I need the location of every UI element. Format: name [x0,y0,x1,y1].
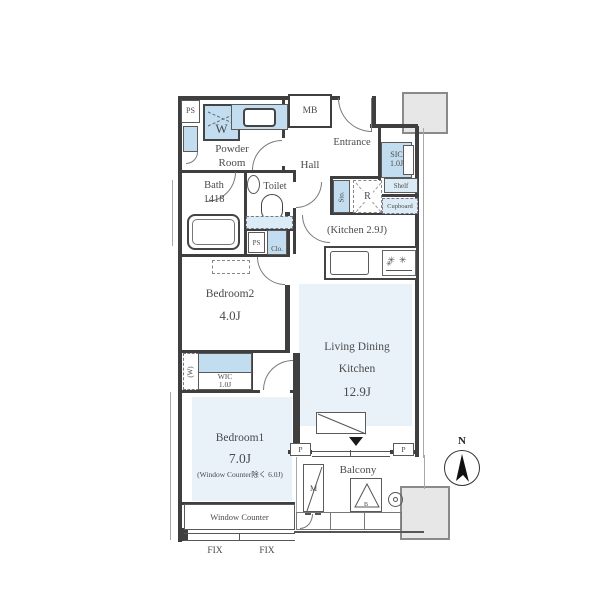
meter-box: MB [288,94,332,128]
powder-room-label: Powder Room [186,142,278,171]
window-balcony [312,456,390,457]
wall [293,353,300,453]
bedroom2-size-label: 4.0J [189,308,271,325]
compass-north-label: N [452,434,472,448]
bathtub-inner [192,219,235,245]
toilet-label: Toilet [256,180,294,193]
wall [415,126,419,457]
bedroom2-door-arc [257,257,285,285]
bedroom1-door-arc [263,360,293,390]
window-bath-left [172,180,173,246]
fix-right-label: FIX [250,545,284,557]
balcony-base-line [294,531,424,533]
refrigerator-space: R [353,180,382,213]
wall [293,208,296,254]
ac-unit [316,412,366,434]
bedroom1-name-label: Bedroom1 [198,431,282,446]
kitchen-note-label: (Kitchen 2.9J) [312,224,402,238]
compass-needle [445,451,481,487]
fix-left-label: FIX [198,545,232,557]
clo-label: Clo. [271,245,283,253]
wall [282,166,285,172]
window-counter-label: Window Counter [210,512,268,522]
ldk-label-line2: Kitchen [314,362,400,377]
p-right-label: P [401,445,405,454]
hall-label: Hall [288,158,332,172]
wic-w-strip: (W) [183,353,199,390]
sash-direction-marker [349,437,363,446]
balcony-edge-left [296,457,297,513]
window-mullion [350,450,351,457]
ps-top-label: PS [186,107,195,116]
outline-left-bottom [170,392,171,540]
hatch-label: B [364,502,368,508]
wic-label: WIC 1.0J [218,373,233,390]
entrance-label: Entrance [324,136,380,150]
evacuation-hatch: B [350,478,382,512]
bedroom1-size-label: 7.0J [198,450,282,468]
p-left-label: P [298,445,302,454]
window-mullion [239,533,240,541]
bathtub [187,214,240,250]
entrance-door-arc [338,98,372,132]
sic-label: SIC 1.0J [390,151,403,169]
pipe-space-mid: PS [248,232,265,253]
wall [285,285,290,353]
ldk-floor [299,284,412,426]
ldk-size-label: 12.9J [314,384,400,401]
entrance-door-leaf [371,98,372,132]
drain-inner [393,497,398,502]
wall [178,390,260,393]
window-balcony [312,451,390,452]
railing-divider [364,512,365,530]
balcony-label: Balcony [326,463,390,477]
shelf-label: Shelf [394,182,409,190]
window-counter: Window Counter [184,504,295,530]
wic-hanging [198,353,252,373]
kitchen-sink [330,251,369,275]
sic-shoe-shelf [403,145,414,175]
cupboard-label: Cupboard [387,203,413,210]
wall [378,194,418,197]
bedroom2-dashed-fixture [212,260,250,274]
storage-sto: Sto. [333,180,350,213]
mb-label: MB [303,106,318,116]
bedroom1-floor [192,397,292,501]
pipe-space-balcony-left: P [290,443,311,456]
ps-mid-label: PS [253,239,261,247]
bedroom2-name-label: Bedroom2 [189,287,271,302]
sto-label: Sto. [338,191,346,202]
stove-grill-line [386,270,412,271]
vanity-sink [243,108,276,127]
bedroom1-note-label: (Window Counter除く 6.0J) [182,470,298,480]
ac-outdoor-unit: M [303,464,324,512]
wic-side-label: (W) [187,366,195,377]
outline-right [423,128,424,458]
burner-small-icon: ✳ [386,260,392,268]
pipe-space-top: PS [181,100,200,123]
closet: Clo. [267,230,287,255]
balcony-edge-right [424,455,425,489]
bath-label: Bath 1418 [188,179,240,206]
railing-divider [330,512,331,530]
refrigerator-label: R [362,191,373,202]
pipe-space-balcony-right: P [393,443,414,456]
drain-icon [388,492,403,507]
floor-plan: PS W MB SIC 1.0J Shelf PS Clo. Sto. R [0,0,606,601]
ldk-label-line1: Living Dining [314,340,400,355]
cupboard: Cupboard [382,198,418,214]
washer-label: W [215,121,227,137]
sic-shelf: Shelf [384,178,418,193]
wall [333,176,379,179]
compass-icon [444,450,480,486]
ac-diagonal [317,413,367,435]
toilet-counter [246,216,293,229]
toilet-door-arc [296,182,322,208]
wic-closet: WIC 1.0J [198,372,252,390]
outdoor-unit-label: M [310,484,317,493]
